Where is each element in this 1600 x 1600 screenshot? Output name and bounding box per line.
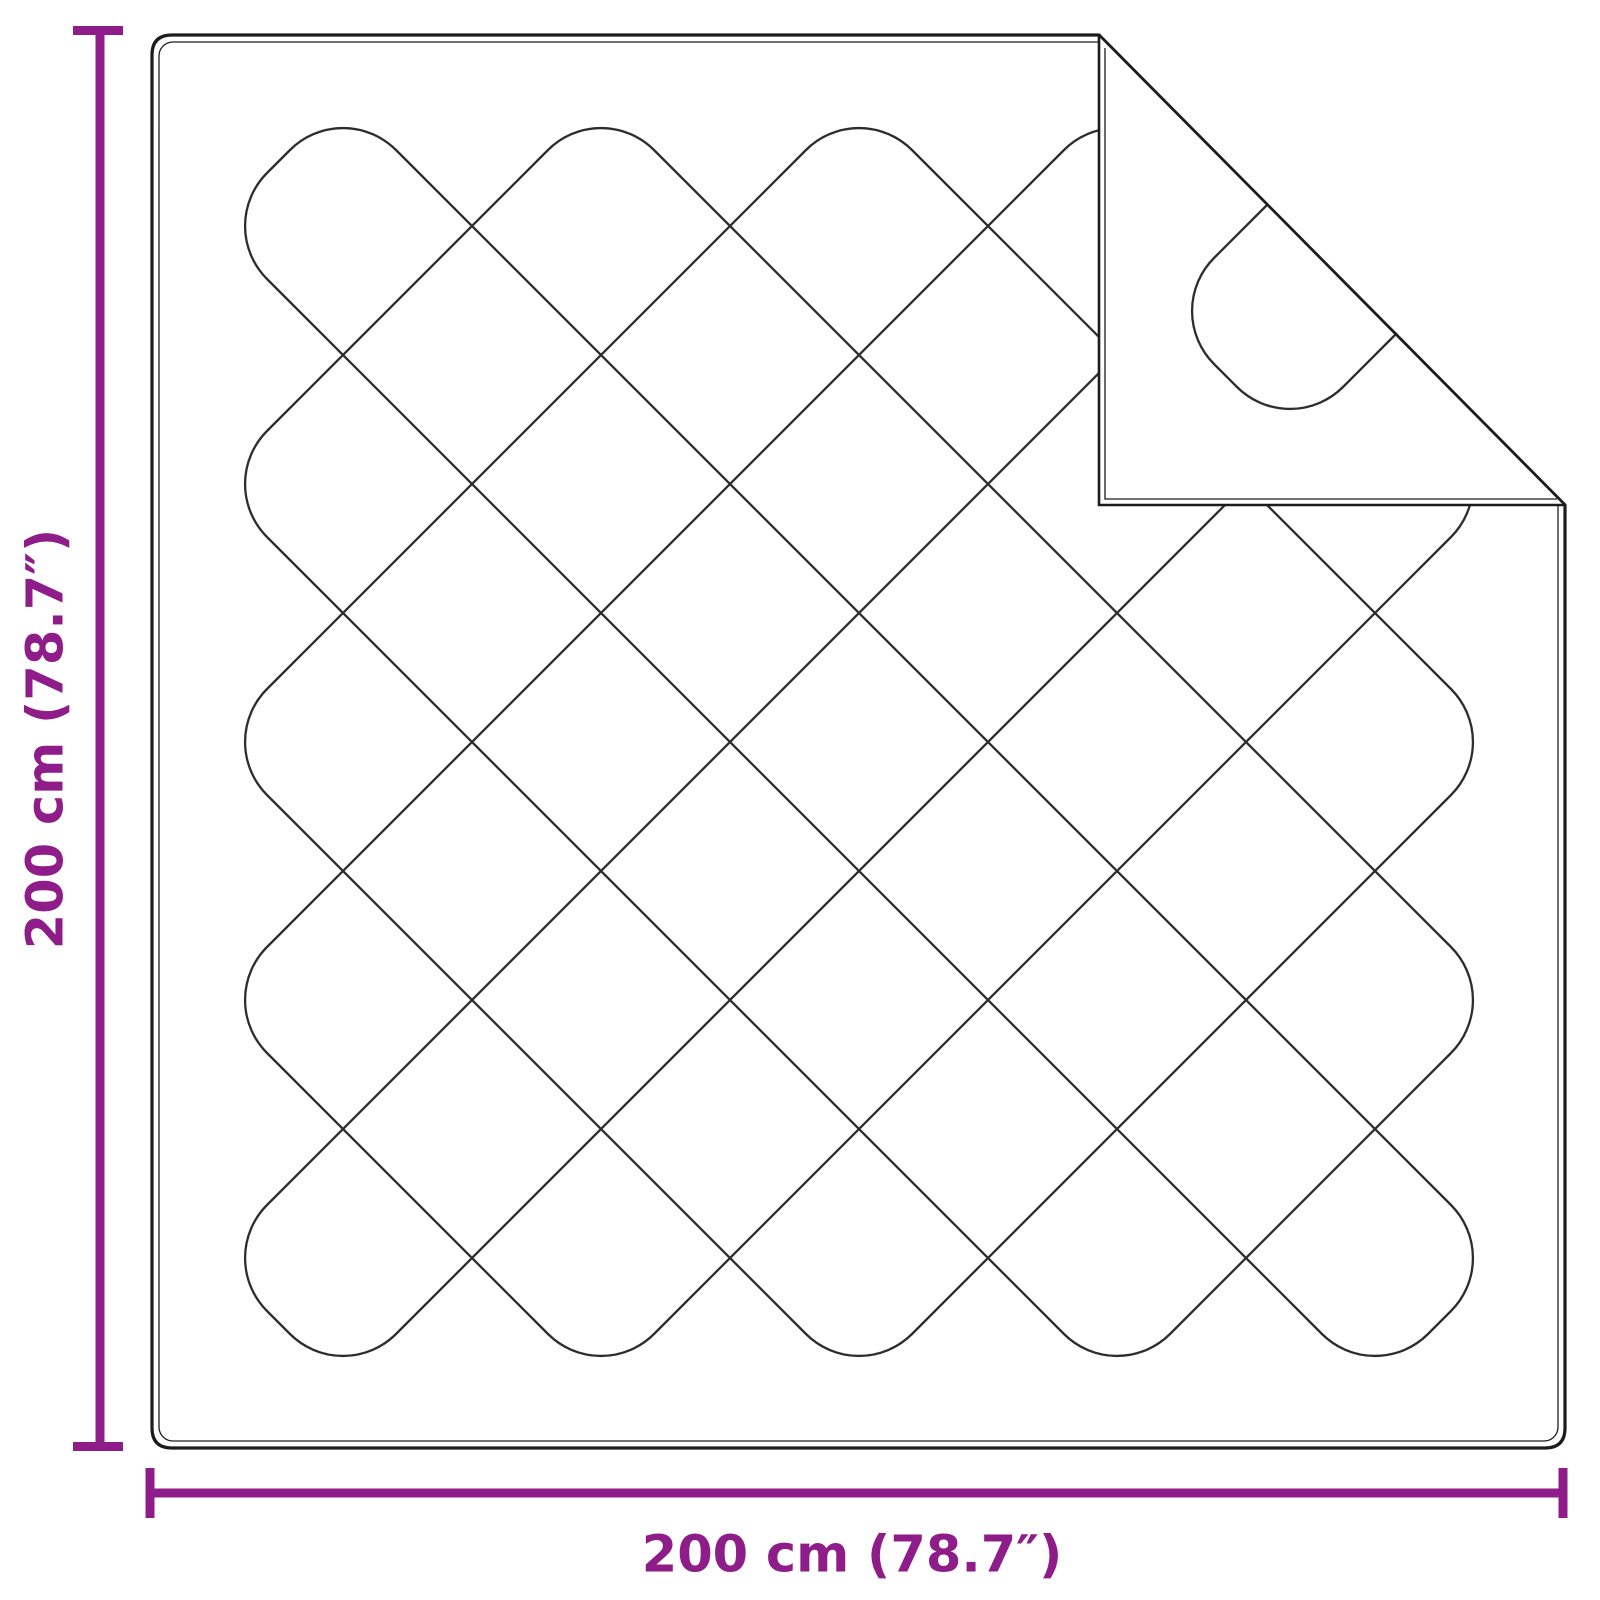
width-dimension-cap-right (1559, 1468, 1568, 1518)
diagram-stage: 200 cm (78.7″) 200 cm (78.7″) (0, 0, 1600, 1600)
height-dimension: 200 cm (78.7″) (17, 26, 124, 1451)
blanket-inner-border (159, 42, 1558, 1441)
folded-corner-flap (1099, 35, 1565, 505)
height-dimension-label: 200 cm (78.7″) (17, 529, 76, 950)
width-dimension-cap-left (146, 1468, 155, 1518)
width-dimension: 200 cm (78.7″) (146, 1468, 1568, 1585)
height-dimension-line (96, 30, 105, 1447)
height-dimension-cap-top (73, 26, 123, 35)
blanket-outline (152, 35, 1565, 1448)
blanket (152, 35, 1565, 1448)
width-dimension-line (150, 1489, 1563, 1498)
blanket-dimension-diagram: 200 cm (78.7″) 200 cm (78.7″) (0, 0, 1600, 1600)
height-dimension-cap-bottom (73, 1442, 123, 1451)
width-dimension-label: 200 cm (78.7″) (642, 1526, 1063, 1585)
